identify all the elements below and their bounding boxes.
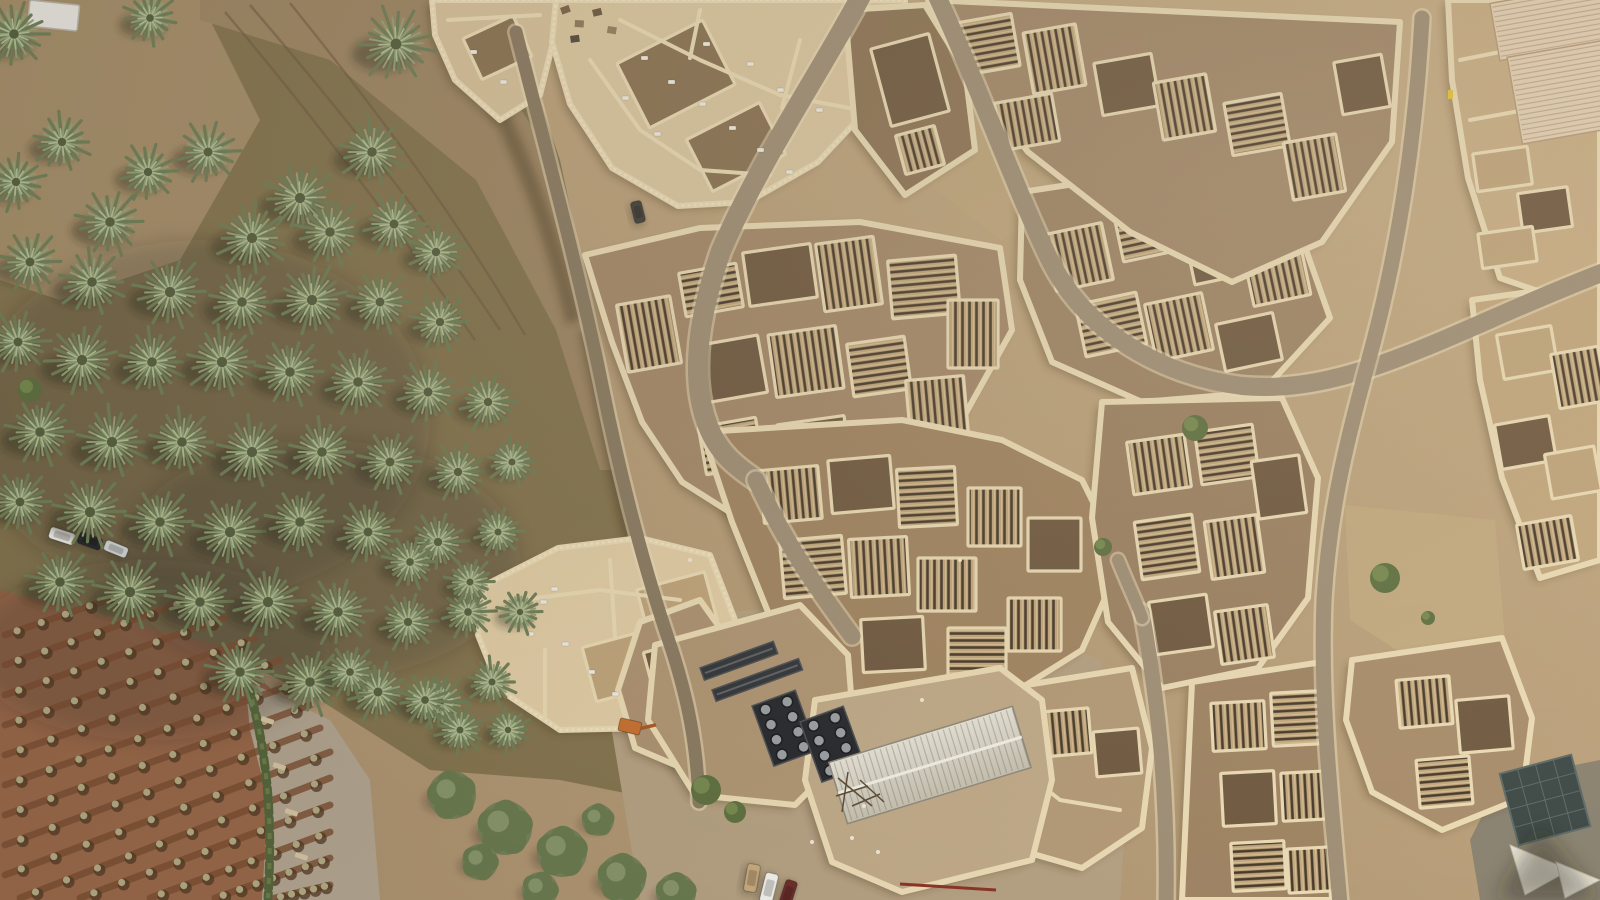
- aerial-photo-canvas: [0, 0, 1600, 900]
- light-overlays: [0, 0, 1600, 900]
- aerial-screenshot: [0, 0, 1600, 900]
